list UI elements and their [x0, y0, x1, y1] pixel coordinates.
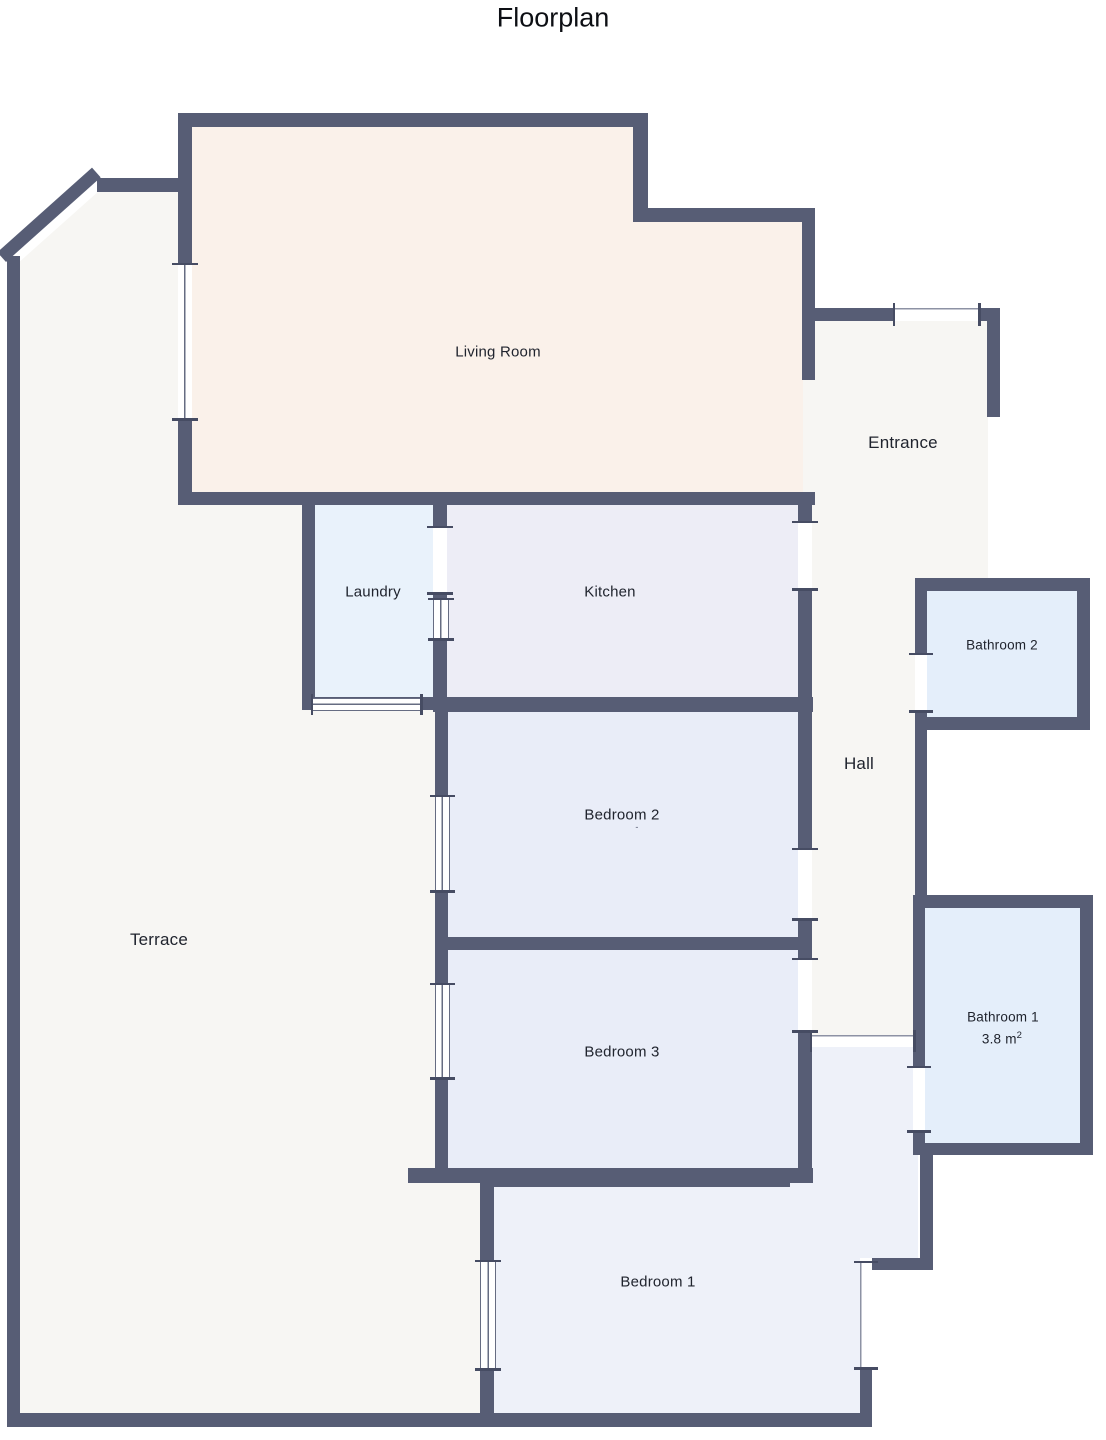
window-bedroom-3 [435, 985, 450, 1077]
room-label-bedroom-3: Bedroom 3 [584, 1044, 659, 1061]
wall-segment [480, 1368, 494, 1413]
wall-segment [480, 1170, 790, 1187]
room-label-living-room: Living Room [455, 344, 541, 361]
door-opening-bedroom-3 [798, 960, 812, 1030]
room-bathroom-1-floor [925, 908, 1080, 1143]
wall-segment [302, 505, 315, 710]
page-title: Floorplan [497, 3, 610, 34]
room-label-terrace: Terrace [130, 930, 188, 950]
room-bathroom-2-floor [927, 590, 1077, 718]
room-label-bathroom-1: Bathroom 1 [967, 1010, 1039, 1025]
wall-segment [915, 578, 1090, 591]
bedroom-1-exterior-door-opening [860, 1263, 872, 1367]
wall-segment [915, 578, 927, 655]
room-label-hall: Hall [844, 754, 874, 774]
wall-segment [7, 1413, 872, 1427]
room-label-bathroom-2: Bathroom 2 [966, 638, 1038, 653]
window-bedroom-1 [480, 1262, 496, 1368]
door-opening-bedroom-2 [798, 850, 812, 918]
wall-segment [815, 308, 895, 321]
door-opening-kitchen [798, 523, 812, 588]
wall-segment [178, 113, 648, 127]
wall-segment [480, 1170, 494, 1262]
wall-segment [1077, 578, 1090, 730]
wall-segment [920, 1155, 933, 1263]
window-living-room [178, 265, 192, 418]
wall-segment [633, 113, 648, 222]
wall-segment [987, 308, 1000, 417]
wall-segment [798, 918, 812, 960]
wall-segment [433, 697, 813, 712]
room-label-bedroom-2: Bedroom 2 [584, 807, 659, 824]
wall-segment [448, 937, 798, 950]
wall-segment [178, 113, 192, 265]
door-opening-laundry [433, 528, 447, 592]
wall-segment [1080, 895, 1093, 1155]
wall-segment [913, 1130, 925, 1155]
wall-segment [915, 717, 1090, 730]
window-laundry-kitchen [433, 600, 449, 638]
living-room-hall-opening [803, 380, 815, 492]
window-laundry [313, 698, 420, 711]
room-area-sup: 2 [1017, 1030, 1022, 1041]
wall-segment [913, 1143, 1093, 1155]
wall-segment [435, 710, 448, 797]
wall-segment [802, 208, 815, 380]
door-opening-bathroom-1 [913, 1068, 925, 1130]
wall-segment [798, 1030, 812, 1183]
room-laundry-floor [313, 505, 433, 698]
wall-segment [178, 492, 815, 505]
wall-segment [798, 712, 812, 850]
room-kitchen-floor [447, 505, 798, 698]
room-label-bedroom-2-note: - [635, 822, 638, 832]
wall-segment [872, 1258, 933, 1270]
wall-segment [633, 208, 815, 222]
wall-segment [860, 1367, 872, 1417]
wall-segment [913, 895, 1093, 908]
room-label-entrance: Entrance [868, 433, 938, 453]
door-opening-bathroom-2 [915, 655, 927, 710]
door-opening-hall-bedroom-1 [812, 1035, 913, 1047]
floorplan-canvas: Floorplan Living Room Entrance Laundry K… [0, 0, 1106, 1440]
room-label-bedroom-1: Bedroom 1 [620, 1274, 695, 1291]
wall-segment [435, 890, 448, 985]
room-area-value: 3.8 m [982, 1031, 1017, 1046]
room-label-kitchen: Kitchen [584, 584, 635, 601]
wall-segment [915, 710, 927, 895]
wall-segment [435, 1077, 448, 1168]
wall-segment [7, 256, 20, 1427]
room-label-laundry: Laundry [345, 584, 401, 601]
wall-segment [798, 588, 812, 712]
room-bedroom-2-floor [448, 712, 798, 937]
room-area-bathroom-1: 3.8 m2 [982, 1030, 1022, 1047]
front-door-opening [895, 308, 978, 321]
window-bedroom-2 [435, 797, 450, 890]
